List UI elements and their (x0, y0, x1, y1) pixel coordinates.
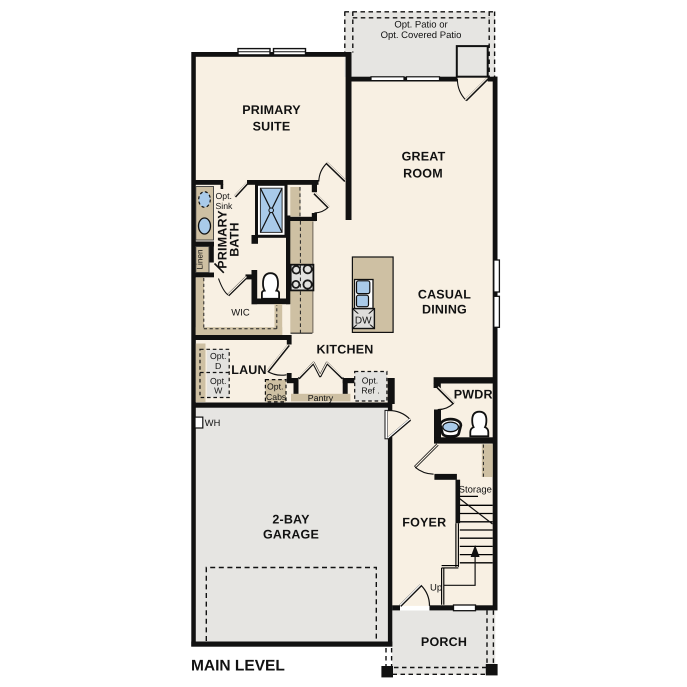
svg-text:DINING: DINING (422, 303, 467, 317)
svg-text:DW: DW (355, 315, 372, 326)
svg-text:Linen: Linen (196, 249, 205, 269)
svg-text:WIC: WIC (231, 308, 250, 319)
svg-text:Opt. Patio or: Opt. Patio or (394, 19, 447, 30)
svg-text:Opt.: Opt. (362, 376, 378, 386)
svg-text:W: W (214, 385, 223, 395)
svg-text:GARAGE: GARAGE (263, 528, 319, 542)
svg-text:GREAT: GREAT (402, 150, 446, 164)
svg-text:Opt. Covered Patio: Opt. Covered Patio (381, 30, 462, 41)
svg-text:Cabs: Cabs (266, 392, 287, 402)
svg-text:Storage: Storage (459, 485, 492, 496)
svg-text:KITCHEN: KITCHEN (317, 343, 374, 357)
svg-text:MAIN LEVEL: MAIN LEVEL (191, 658, 285, 675)
svg-text:FOYER: FOYER (402, 516, 446, 530)
svg-text:Opt.: Opt. (210, 376, 226, 386)
svg-text:PORCH: PORCH (421, 635, 467, 649)
svg-text:Ref .: Ref . (361, 386, 379, 396)
svg-text:Opt.: Opt. (216, 191, 232, 201)
svg-text:SUITE: SUITE (253, 120, 291, 134)
svg-text:PWDR: PWDR (454, 387, 493, 401)
svg-text:Opt.: Opt. (267, 382, 283, 392)
svg-text:D: D (215, 361, 221, 371)
svg-text:LAUN: LAUN (231, 363, 267, 377)
svg-text:2-BAY: 2-BAY (272, 513, 310, 527)
svg-text:ROOM: ROOM (403, 167, 443, 181)
svg-text:WH: WH (205, 418, 221, 428)
svg-text:Pantry: Pantry (308, 393, 334, 403)
svg-text:BATH: BATH (228, 222, 242, 257)
svg-text:Up: Up (430, 583, 442, 594)
svg-text:Sink: Sink (216, 201, 234, 211)
svg-text:Opt.: Opt. (210, 351, 226, 361)
svg-text:CASUAL: CASUAL (418, 288, 471, 302)
svg-text:PRIMARY: PRIMARY (242, 103, 301, 117)
